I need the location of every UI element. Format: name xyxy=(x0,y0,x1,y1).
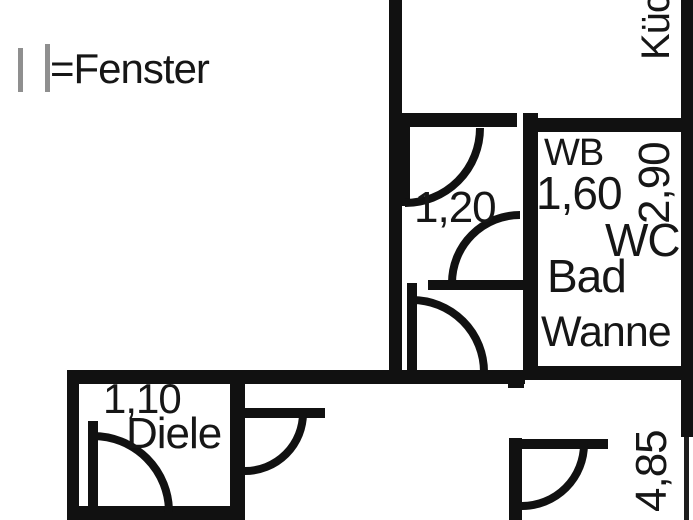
door-room-right-arc xyxy=(522,444,584,506)
floor-plan: =Fenster Küche WB 1,60 2,90 WC Bad Wanne… xyxy=(0,0,693,520)
label-wohnraum-depth: 4,85 xyxy=(630,430,674,512)
label-bad-depth: 2,90 xyxy=(633,142,677,224)
label-diele: Diele xyxy=(126,412,221,456)
wall-bath-top xyxy=(523,118,693,132)
window-right-wall xyxy=(684,437,689,520)
wall-room-left-lower xyxy=(509,438,522,520)
legend-text: =Fenster xyxy=(50,48,209,90)
label-kueche: Küche xyxy=(636,0,676,60)
wall-diele-right xyxy=(230,370,245,520)
wall-kitchen-bottom xyxy=(395,113,517,127)
wall-bath-bottom xyxy=(523,366,693,380)
wall-bath-left xyxy=(523,113,538,380)
wall-diele-left xyxy=(67,370,79,520)
door-corridor-bottom-arc xyxy=(412,300,484,372)
label-bad-width: 1,60 xyxy=(536,170,622,216)
label-bad: Bad xyxy=(547,253,626,299)
legend-window-bar-1 xyxy=(18,48,23,92)
label-wanne: Wanne xyxy=(541,311,671,354)
wall-room-left-upper xyxy=(508,370,524,388)
label-flur-width: 1,20 xyxy=(414,186,496,230)
door-living-arc xyxy=(245,413,303,471)
